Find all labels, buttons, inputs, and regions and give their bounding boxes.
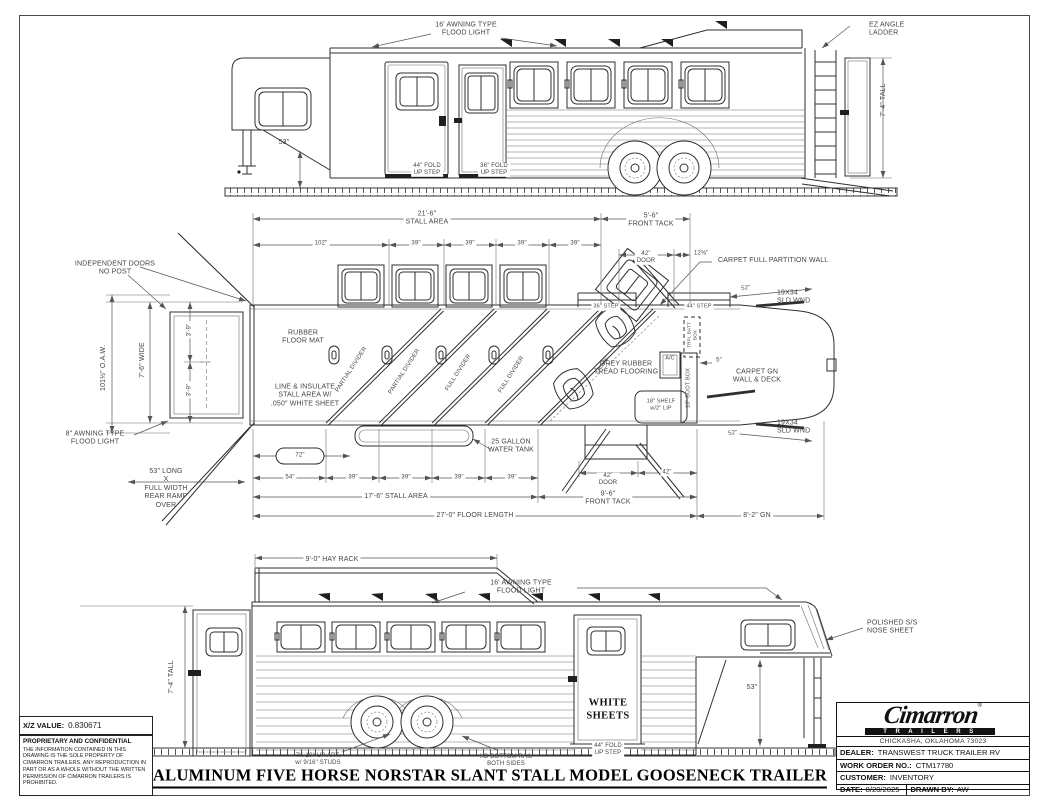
dim-gn-82: 8'-2" GN: [741, 512, 773, 520]
flood-light-label-top: 16' AWNING TYPE FLOOD LIGHT: [435, 22, 497, 39]
carpet-partition-label: CARPET FULL PARTITION WALL: [716, 257, 830, 265]
dim-39-b4: 39": [505, 474, 518, 481]
dim-39-t3: 39": [515, 240, 528, 247]
work-order-label: WORK ORDER NO.:: [840, 761, 912, 770]
dim-39-b2: 39": [399, 474, 412, 481]
date-label: DATE:: [840, 785, 863, 794]
step-44-label-plan-top: 44" STEP: [684, 304, 713, 311]
slider-window-label-bottom: 19X34 SLD WND: [777, 420, 810, 437]
drawing-sheet: 16' AWNING TYPE FLOOD LIGHT EZ ANGLE LAD…: [0, 0, 1048, 810]
drawn-by-value: AW: [957, 785, 969, 794]
confidential-title: PROPRIETARY AND CONFIDENTIAL: [23, 738, 149, 745]
dim-oaw: 101½" O.A.W.: [100, 345, 108, 391]
dim-front-tack-top: 5'-6" FRONT TACK: [626, 213, 675, 230]
dim-39-b3: 39": [452, 474, 465, 481]
flood-light-label-bottom: 16' AWNING TYPE FLOOD LIGHT: [490, 580, 552, 597]
rear-ramp-note: 53" LONG X FULL WIDTH REAR RAMP OVER: [144, 468, 187, 510]
dim-5: 5": [716, 357, 722, 364]
fold-step-44-label-bottom: 44" FOLD UP STEP: [592, 743, 624, 757]
awning-8-label: 8" AWNING TYPE FLOOD LIGHT: [66, 431, 125, 448]
dealer-row: DEALER: TRANSWEST TRUCK TRAILER RV: [837, 746, 1029, 759]
dim-52-top: 52": [739, 285, 753, 294]
work-order-row: WORK ORDER NO.: CTM17780: [837, 759, 1029, 772]
nose-sheet-label: POLISHED S/S NOSE SHEET: [867, 620, 917, 637]
batt-box-label: TRPL BATT BOX: [687, 322, 698, 348]
carpet-gn-label: CARPET GN WALL & DECK: [733, 369, 781, 386]
dim-54: 54": [283, 474, 296, 481]
shelf-label: 18" SHELF w/2" LIP: [647, 398, 676, 411]
slider-window-label-top: 19X34 SLD WND: [777, 290, 810, 307]
date-cell: DATE: 8/20/2025: [837, 784, 902, 795]
dim-53-bottom: 53": [747, 684, 758, 692]
ac-label: A/C: [665, 356, 675, 363]
dim-102: 102": [313, 240, 330, 247]
drawing-title: ALUMINUM FIVE HORSE NORSTAR SLANT STALL …: [153, 766, 827, 789]
cimarron-logo: Cimarron® T R A I L E R S: [837, 703, 1029, 736]
dim-39-half-upper: 3'-9": [186, 322, 193, 339]
customer-row: CUSTOMER: INVENTORY: [837, 771, 1029, 784]
water-tank-label: 25 GALLON WATER TANK: [488, 439, 534, 456]
independent-doors-label: INDEPENDENT DOORS NO POST: [75, 261, 155, 278]
dim-stall-area-top: 21'-6" STALL AREA: [404, 211, 451, 228]
xz-value: 0.830671: [68, 721, 101, 730]
brand-name: Cimarron: [882, 703, 979, 728]
line-insulate-label: LINE & INSULATE STALL AREA W/ .050" WHIT…: [271, 383, 339, 408]
xz-value-box: X/Z VALUE: 0.830671: [19, 716, 153, 735]
dim-42: 42": [660, 469, 673, 476]
rubber-floor-mat-label: RUBBER FLOOR MAT: [282, 330, 324, 347]
fold-step-36-label-top: 36" FOLD UP STEP: [478, 163, 510, 177]
dim-39-t1: 39": [409, 240, 422, 247]
dim-42-door-top: 42" DOOR: [635, 251, 658, 265]
dim-74-tall-bottom: 7'-4" TALL: [168, 660, 176, 693]
drawn-by-cell: DRAWN BY: AW: [906, 784, 971, 795]
customer-label: CUSTOMER:: [840, 773, 886, 782]
hay-rack-dim: 9'-0" HAY RACK: [303, 556, 360, 564]
step-36-label-plan: 36" STEP: [591, 304, 620, 311]
dim-74-tall-top: 7'-4" TALL: [880, 83, 888, 116]
title-block: Cimarron® T R A I L E R S CHICKASHA, OKL…: [836, 702, 1030, 790]
ez-ladder-label: EZ ANGLE LADDER: [869, 22, 904, 39]
date-value: 8/20/2025: [866, 785, 900, 794]
dim-front-tack-bottom: 9'-6" FRONT TACK: [583, 491, 632, 508]
drawn-by-label: DRAWN BY:: [910, 785, 953, 794]
white-sheets-label: WHITE SHEETS: [586, 697, 629, 722]
dim-39-t4: 39": [568, 240, 581, 247]
dim-39-b1: 39": [346, 474, 359, 481]
dim-52-bottom: 52": [726, 430, 740, 439]
confidential-text: THE INFORMATION CONTAINED IN THIS DRAWIN…: [23, 747, 149, 788]
company-address: CHICKASHA, OKLAHOMA 73023: [837, 736, 1029, 746]
dim-floor-length: 27'-0" FLOOR LENGTH: [434, 512, 515, 520]
dim-39-t2: 39": [463, 240, 476, 247]
side-elevation-curbside-drawing: [150, 18, 920, 202]
dealer-value: TRANSWEST TRUCK TRAILER RV: [878, 748, 1000, 757]
dim-12-58: 12⅝": [694, 250, 708, 257]
dim-53-top: 53": [279, 139, 290, 147]
dealer-label: DEALER:: [840, 748, 874, 757]
work-order-value: CTM17780: [916, 761, 954, 770]
dim-42-door-bottom: 42" DOOR: [597, 473, 620, 487]
boot-box-label: 18" BOOT BOX: [686, 368, 693, 408]
dim-76-wide: 7'-6" WIDE: [139, 342, 147, 378]
dim-stall-area-bottom: 17'-6" STALL AREA: [362, 493, 430, 501]
customer-value: INVENTORY: [890, 773, 934, 782]
dim-72: 72": [295, 452, 304, 459]
dim-39-half-lower: 3'-9": [186, 382, 193, 399]
fold-step-44-label-top: 44" FOLD UP STEP: [411, 163, 443, 177]
xz-value-label: X/Z VALUE:: [23, 721, 64, 730]
confidential-box: PROPRIETARY AND CONFIDENTIAL THE INFORMA…: [19, 735, 153, 796]
date-drawn-row: DATE: 8/20/2025 DRAWN BY: AW: [837, 784, 1029, 795]
brand-banner: T R A I L E R S: [865, 728, 995, 735]
